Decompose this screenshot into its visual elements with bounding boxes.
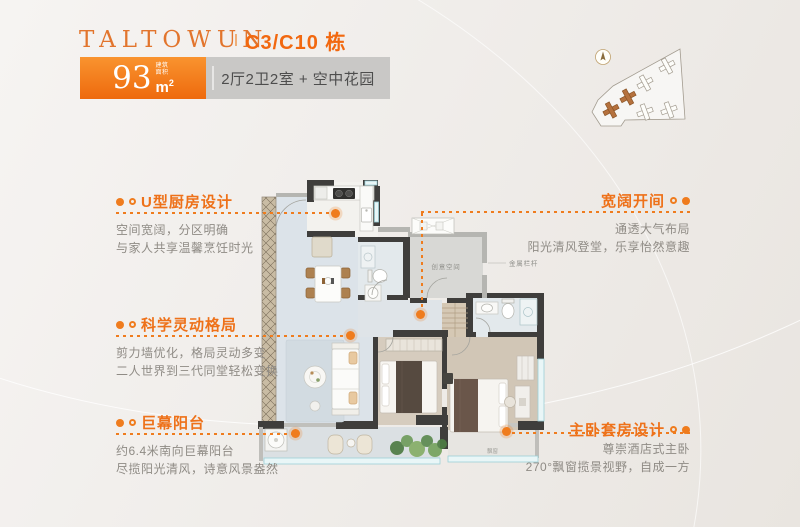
sofa-cushion [349, 352, 357, 364]
area-unit: m2 [156, 76, 174, 95]
annotation-master-body: 尊崇酒店式主卧 270°飘窗揽景视野，自成一方 [526, 441, 690, 476]
desk-chair [505, 397, 516, 408]
balcony-window [264, 458, 440, 464]
bedroom2-furniture [380, 339, 442, 413]
leader-dot-master [502, 427, 511, 436]
area-badge: 93 建筑 面积 m2 [80, 57, 206, 99]
leader-line-openbay [421, 211, 690, 213]
bullet-hollow-icon [670, 426, 677, 433]
floor-plan: 创意空间 金属栏杆 [230, 180, 560, 470]
dining-table [315, 266, 341, 302]
annotation-title: 主卧套房设计 [569, 419, 665, 440]
bullet-hollow-icon [129, 419, 136, 426]
dining-chair [341, 268, 350, 278]
compass-icon [596, 50, 611, 65]
site-plan [583, 40, 705, 140]
leader-dot-openbay [416, 310, 425, 319]
pillow [382, 364, 389, 384]
building-label: C3/C10 栋 [245, 26, 346, 55]
leader-dot-kitchen [331, 209, 340, 218]
leader-line-kitchen [116, 212, 333, 214]
area-value: 93 [112, 63, 151, 94]
annotation-balcony: 巨幕阳台 [116, 412, 205, 433]
bookshelf [517, 356, 534, 380]
bullet-filled-icon [116, 321, 124, 329]
leader-line-openbay-vertical [421, 213, 423, 313]
annotation-openbay-body: 通透大气布局 阳光清风登堂，乐享怡然意趣 [527, 221, 690, 256]
dining-chair [306, 268, 315, 278]
bullet-hollow-icon [129, 321, 136, 328]
bay-window-glass [448, 456, 538, 462]
bullet-filled-icon [116, 419, 124, 427]
annotation-master: 主卧套房设计 [569, 419, 690, 440]
annotation-title: U型厨房设计 [141, 191, 233, 212]
bed-throw [396, 361, 422, 413]
lounge-chair [328, 435, 343, 454]
sofa-cushion [349, 392, 357, 404]
creative-space-label: 创意空间 [431, 262, 460, 271]
fridge [315, 187, 327, 199]
logo-separator [235, 34, 237, 46]
armchair [443, 373, 453, 384]
annotation-layout: 科学灵动格局 [116, 314, 237, 335]
master-bed-throw [454, 379, 478, 432]
spec-divider [212, 66, 214, 90]
dining-chair [341, 288, 350, 298]
living-room-furniture [286, 340, 359, 422]
laptop [519, 398, 526, 406]
shower [361, 246, 375, 268]
leader-dot-balcony [291, 429, 300, 438]
stool [310, 401, 320, 411]
bullet-filled-icon [682, 426, 690, 434]
layout-spec-box: 2厅2卫2室 + 空中花园 [206, 57, 390, 99]
wash-basin [482, 304, 493, 312]
annotation-kitchen: U型厨房设计 [116, 191, 233, 212]
annotation-title: 巨幕阳台 [141, 412, 205, 433]
annotation-balcony-body: 约6.4米南向巨幕阳台 尽揽阳光清风，诗意风景盎然 [116, 443, 279, 478]
annotation-kitchen-body: 空间宽阔，分区明确 与家人共享温馨烹饪时光 [116, 222, 254, 257]
annotation-title: 宽阔开间 [601, 190, 665, 211]
bullet-hollow-icon [129, 198, 136, 205]
lounge-chair [357, 435, 372, 454]
leader-line-balcony [116, 433, 293, 435]
toilet [502, 304, 514, 319]
master-bay-window [538, 359, 544, 421]
kitchen-side-window [375, 202, 379, 222]
poster-canvas: TALTOWUN C3/C10 栋 93 建筑 面积 m2 2厅2卫2室 + 空… [0, 0, 800, 527]
annotation-openbay: 宽阔开间 [601, 190, 690, 211]
kitchen-island [312, 237, 332, 257]
leader-line-layout [116, 335, 348, 337]
area-note: 建筑 面积 [156, 63, 169, 76]
annotation-title: 科学灵动格局 [141, 314, 237, 335]
annotation-layout-body: 剪力墙优化，格局灵动多变 二人世界到三代同堂轻松变换 [116, 345, 279, 380]
bay-window-label: 飘窗 [487, 447, 499, 455]
metal-railing-label: 金属栏杆 [509, 259, 538, 268]
leader-dot-layout [346, 331, 355, 340]
brand-logo: TALTOWUN [79, 27, 268, 53]
coffee-table [304, 366, 326, 388]
bullet-hollow-icon [670, 197, 677, 204]
dining-chair [306, 288, 315, 298]
layout-spec-text: 2厅2卫2室 + 空中花园 [221, 68, 375, 89]
bullet-filled-icon [682, 197, 690, 205]
pillow [499, 406, 506, 427]
shower [520, 299, 537, 325]
side-table [347, 439, 355, 447]
bullet-filled-icon [116, 198, 124, 206]
curtain-wall-strip [262, 197, 276, 427]
pillow [382, 386, 389, 406]
kitchen-window [365, 181, 377, 185]
toilet [373, 270, 387, 283]
